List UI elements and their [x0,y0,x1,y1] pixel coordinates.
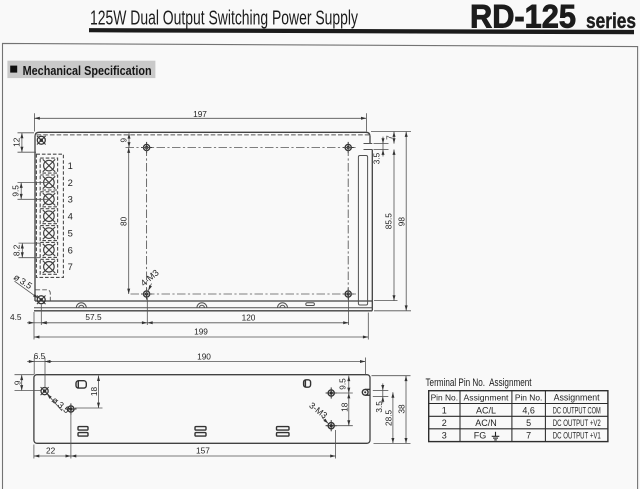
svg-text:80: 80 [119,216,129,226]
svg-text:38: 38 [397,404,407,414]
svg-text:FG: FG [474,431,487,441]
svg-text:2: 2 [442,418,447,428]
svg-text:3: 3 [68,194,73,205]
svg-text:series: series [586,10,636,33]
svg-text:28.5: 28.5 [384,409,394,426]
svg-text:ø 3.5: ø 3.5 [12,272,34,291]
svg-text:7: 7 [386,135,395,140]
svg-text:57.5: 57.5 [85,312,102,322]
svg-text:AC/N: AC/N [475,418,497,428]
svg-text:8.2: 8.2 [12,244,22,256]
svg-text:12: 12 [11,137,21,147]
svg-text:85.5: 85.5 [383,213,393,230]
svg-text:199: 199 [194,327,208,337]
svg-text:6: 6 [68,244,73,255]
svg-text:Terminal Pin No. Assignment: Terminal Pin No. Assignment [426,377,533,389]
svg-text:190: 190 [197,351,211,361]
svg-text:2: 2 [68,177,73,188]
svg-text:DC OUTPUT COM: DC OUTPUT COM [553,406,601,416]
svg-text:9: 9 [120,137,129,142]
svg-text:5: 5 [526,418,531,428]
svg-text:3.5: 3.5 [373,152,382,164]
svg-text:4: 4 [68,211,73,222]
svg-text:9: 9 [14,380,23,385]
svg-text:98: 98 [396,217,406,227]
svg-text:Assignment: Assignment [554,393,601,403]
svg-text:3-M3: 3-M3 [307,400,329,420]
svg-text:Mechanical Specification: Mechanical Specification [23,64,152,78]
svg-text:18: 18 [340,402,350,412]
svg-text:4-M3: 4-M3 [139,267,161,288]
svg-text:3.5: 3.5 [375,401,384,413]
svg-text:RD-125: RD-125 [470,0,576,35]
svg-text:Pin No.: Pin No. [431,393,458,403]
svg-text:AC/L: AC/L [476,406,496,416]
svg-text:1: 1 [442,406,447,416]
svg-text:7: 7 [526,431,531,441]
svg-text:Assignment: Assignment [464,393,510,403]
svg-text:7: 7 [68,261,73,272]
svg-text:9.5: 9.5 [11,185,21,197]
svg-text:18: 18 [89,387,99,397]
svg-text:197: 197 [193,109,207,119]
svg-text:125W Dual Output Switching Pow: 125W Dual Output Switching Power Supply [90,7,359,30]
svg-text:4,6: 4,6 [522,406,535,416]
svg-text:6.5: 6.5 [34,352,46,361]
svg-text:DC OUTPUT +V1: DC OUTPUT +V1 [553,431,601,441]
svg-text:9.5: 9.5 [339,378,348,390]
svg-text:157: 157 [196,445,210,455]
svg-text:5: 5 [68,227,73,238]
svg-text:ø 3.5: ø 3.5 [50,395,72,415]
svg-text:3: 3 [442,431,447,441]
svg-text:DC OUTPUT +V2: DC OUTPUT +V2 [553,418,601,428]
svg-text:4.5: 4.5 [10,312,22,322]
svg-text:22: 22 [46,445,56,455]
svg-text:120: 120 [242,313,256,323]
svg-text:Pin No.: Pin No. [515,393,542,403]
svg-text:1: 1 [68,160,73,171]
